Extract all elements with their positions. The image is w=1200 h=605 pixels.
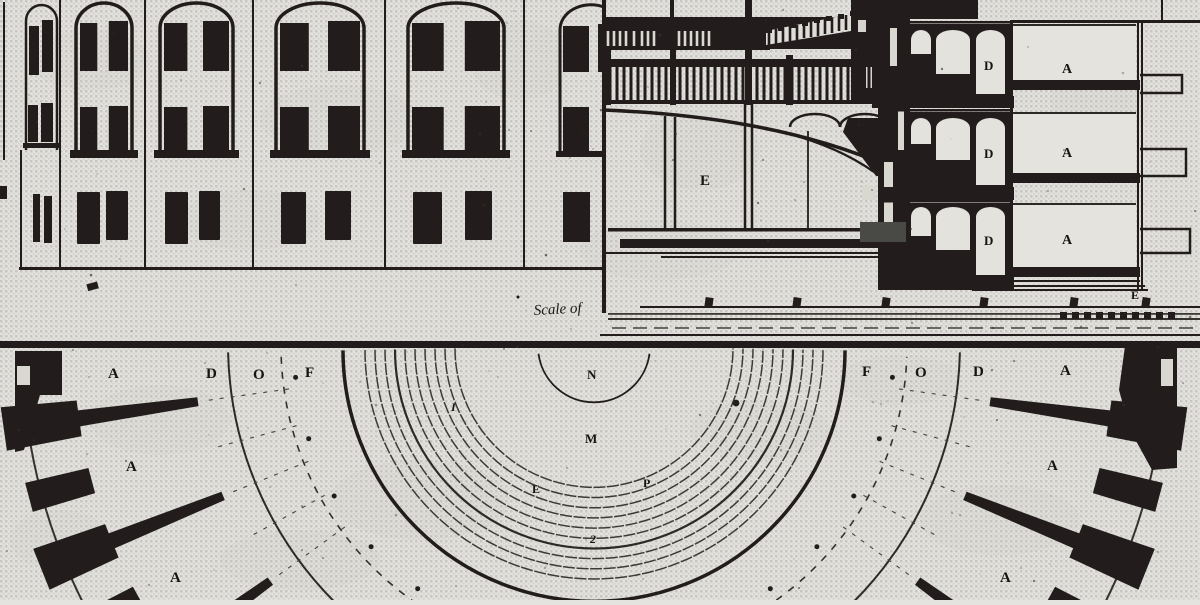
svg-text:A: A <box>170 570 181 586</box>
svg-text:D: D <box>973 364 984 380</box>
svg-text:A: A <box>1062 233 1073 248</box>
svg-text:E: E <box>1131 288 1139 302</box>
svg-text:E: E <box>532 482 540 496</box>
svg-text:2: 2 <box>589 532 596 546</box>
svg-text:A: A <box>126 459 137 475</box>
svg-text:A: A <box>1047 458 1058 474</box>
svg-text:F: F <box>305 365 314 381</box>
svg-text:M: M <box>585 431 597 446</box>
svg-text:D: D <box>206 366 217 382</box>
svg-text:A: A <box>1000 570 1011 586</box>
svg-text:A: A <box>108 366 119 382</box>
svg-text:F: F <box>862 364 871 380</box>
svg-text:O: O <box>915 365 927 381</box>
svg-text:P: P <box>643 476 650 490</box>
svg-text:D: D <box>984 146 993 161</box>
svg-text:O: O <box>253 367 265 383</box>
svg-text:D: D <box>984 233 993 248</box>
svg-text:E: E <box>700 173 710 189</box>
svg-text:D: D <box>984 58 993 73</box>
svg-text:A: A <box>1062 62 1073 77</box>
svg-text:N: N <box>587 367 597 382</box>
svg-text:A: A <box>1062 146 1073 161</box>
svg-text:Scale of: Scale of <box>533 300 584 319</box>
